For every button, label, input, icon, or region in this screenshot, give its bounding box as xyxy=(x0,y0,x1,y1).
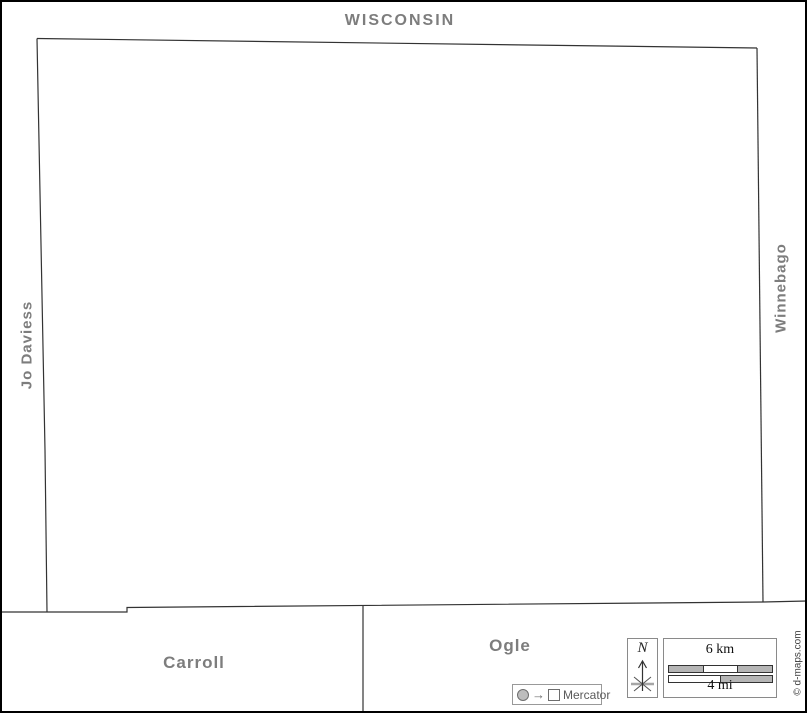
wisconsin-label: WISCONSIN xyxy=(345,12,455,30)
county-boundary-lines xyxy=(0,0,807,713)
ogle-label: Ogle xyxy=(489,636,531,656)
scale-segment xyxy=(669,666,703,672)
scale-box: 6 km 4 mi xyxy=(663,638,777,698)
scale-segment xyxy=(703,666,738,672)
winnebago-label: Winnebago xyxy=(773,243,790,333)
scale-mi-label: 4 mi xyxy=(664,678,776,694)
dmaps-credit: © d-maps.com xyxy=(793,630,804,695)
carroll-label: Carroll xyxy=(163,653,225,673)
winnebago-ogle-line xyxy=(763,601,807,602)
scale-km-label: 6 km xyxy=(664,642,776,658)
scale-bar-km xyxy=(668,665,773,673)
projection-name-label: Mercator xyxy=(563,688,610,702)
north-label: N xyxy=(628,640,657,657)
south-border-line xyxy=(47,602,763,612)
scale-segment xyxy=(737,666,772,672)
arrow-right-icon: → xyxy=(532,688,545,701)
north-border-line xyxy=(37,39,757,49)
west-border-line xyxy=(37,39,47,613)
north-arrow-box: N xyxy=(627,638,658,698)
flat-map-square-icon xyxy=(548,689,560,701)
compass-arrow-icon xyxy=(628,658,657,696)
globe-circle-icon xyxy=(517,689,529,701)
east-border-line xyxy=(757,48,763,602)
projection-box: → Mercator xyxy=(512,684,602,705)
county-map-canvas: WISCONSIN Jo Daviess Winnebago Carroll O… xyxy=(0,0,807,713)
jo-daviess-label: Jo Daviess xyxy=(19,301,36,389)
